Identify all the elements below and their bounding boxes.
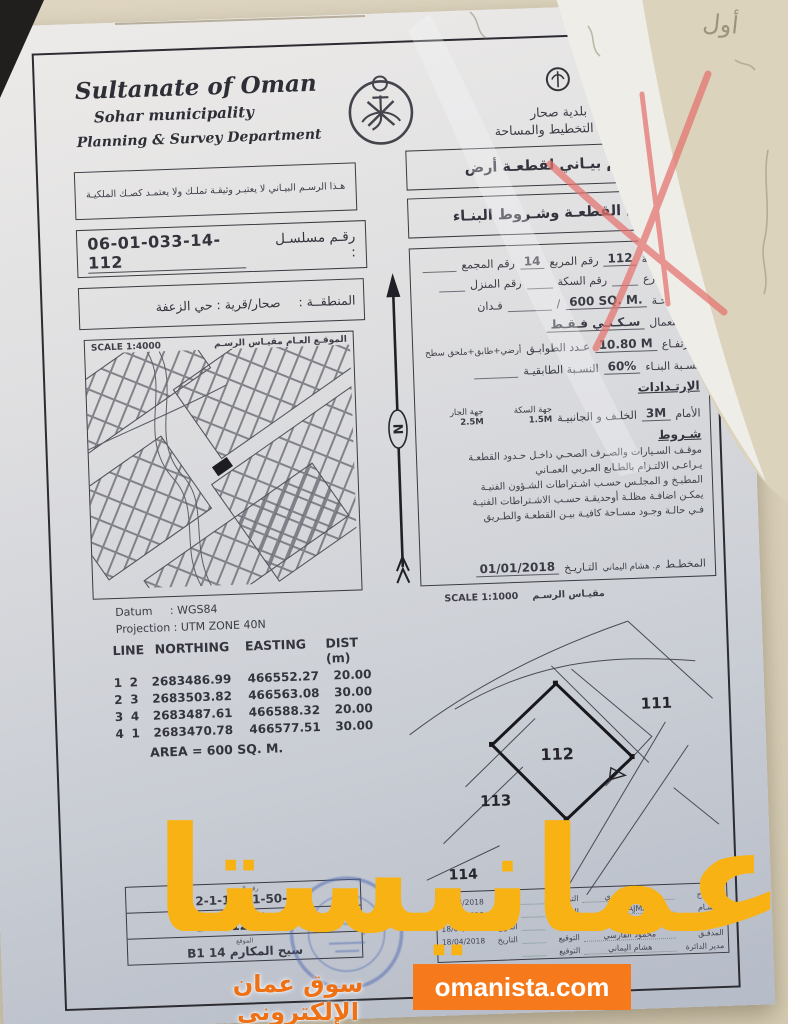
disclaimer-box: هـذا الرسـم البيـاني لا يعتبـر وثيقـة تم…: [74, 162, 358, 220]
projection-label: Projection: [116, 621, 171, 636]
watermark-tagline: سوق عمان الإلكتروني: [178, 970, 418, 1024]
coordinates-table: LINE NORTHING EASTING DIST (m) 12 268348…: [112, 634, 388, 761]
watermark-site-banner: omanista.com: [413, 964, 631, 1010]
detail-row: الاسـتعمالسـكـنـي فـقـط: [412, 312, 706, 337]
oman-national-emblem-icon: [341, 70, 422, 155]
location-map-box: SCALE 1:4000 الموقـع العـام مقيـاس الرسـ…: [84, 331, 363, 600]
detail-row: نسـبة البنـاء60% النسـبة الطابقيـة: [414, 356, 708, 381]
datum-value: : WGS84: [170, 602, 218, 617]
north-arrow-icon: N: [381, 271, 414, 592]
country-title: Sultanate of Oman: [75, 69, 346, 105]
detail-row: الارتفـاع10.80 M عـدد الطوابـقأرضي+طابق+…: [413, 334, 707, 359]
projection-value: : UTM ZONE 40N: [173, 617, 265, 633]
plot-details-box: رقم القطعة112 رقم المربع14 رقم المجمع رق…: [409, 238, 717, 586]
svg-text:N: N: [392, 423, 407, 434]
watermark-brand: عمانيستا: [145, 790, 788, 973]
municipality-title: Sohar municipality: [94, 100, 346, 127]
site-plan-title: مقيـاس الرسـم SCALE 1:1000: [405, 588, 605, 606]
location-map-drawing: [85, 345, 358, 590]
plot-112-label: 112: [540, 744, 574, 764]
region-box: المنطقــة : صحار/قرية : حي الزعفة: [78, 278, 365, 330]
serial-number-box: رقـم مسلسـل : 06-01-033-14-112: [76, 220, 367, 278]
detail-row: رقم الشارع رقم السكة رقم المنزل: [411, 270, 705, 293]
setbacks-row: الأمام3M الخلـف و الجانبيـة جهة السكة 1.…: [415, 399, 710, 429]
planner-row: المخطـط م. هشام اليماني التـاريـخ 01/01/…: [421, 554, 715, 579]
plot-111-label: 111: [640, 694, 672, 713]
doc-subtitle-box: بيـان القطعـة وشـروط البنـاء: [407, 188, 706, 238]
datum-label: Datum: [115, 605, 153, 619]
detail-row: المسـاحـة600 SQ. M. / فـدان: [412, 290, 706, 315]
geodesy-block: Datum : WGS84 Projection : UTM ZONE 40N: [115, 600, 266, 638]
header-arabic: بلدية صحار دائرة التخطيط والمساحة: [454, 62, 661, 140]
region-label: المنطقــة :: [298, 292, 356, 309]
serial-value: 06-01-033-14-112: [87, 229, 246, 273]
ministry-emblem-icon: [454, 62, 660, 106]
header-english: Sultanate of Oman Sohar municipality Pla…: [75, 69, 347, 151]
photo-of-land-survey-document: Sultanate of Oman Sohar municipality Pla…: [0, 0, 788, 1024]
doc-title-box: رسـم بيـاني لقطعـة أرض: [405, 140, 704, 190]
setbacks-heading: الإرتـدادات: [415, 378, 709, 402]
serial-label: رقـم مسلسـل :: [271, 228, 356, 263]
detail-row: رقم القطعة112 رقم المربع14 رقم المجمع: [410, 248, 704, 273]
area-total: AREA = 600 SQ. M.: [150, 737, 388, 760]
department-title: Planning & Survey Department: [77, 126, 347, 151]
region-value: صحار/قرية : حي الزعفة: [155, 295, 280, 314]
